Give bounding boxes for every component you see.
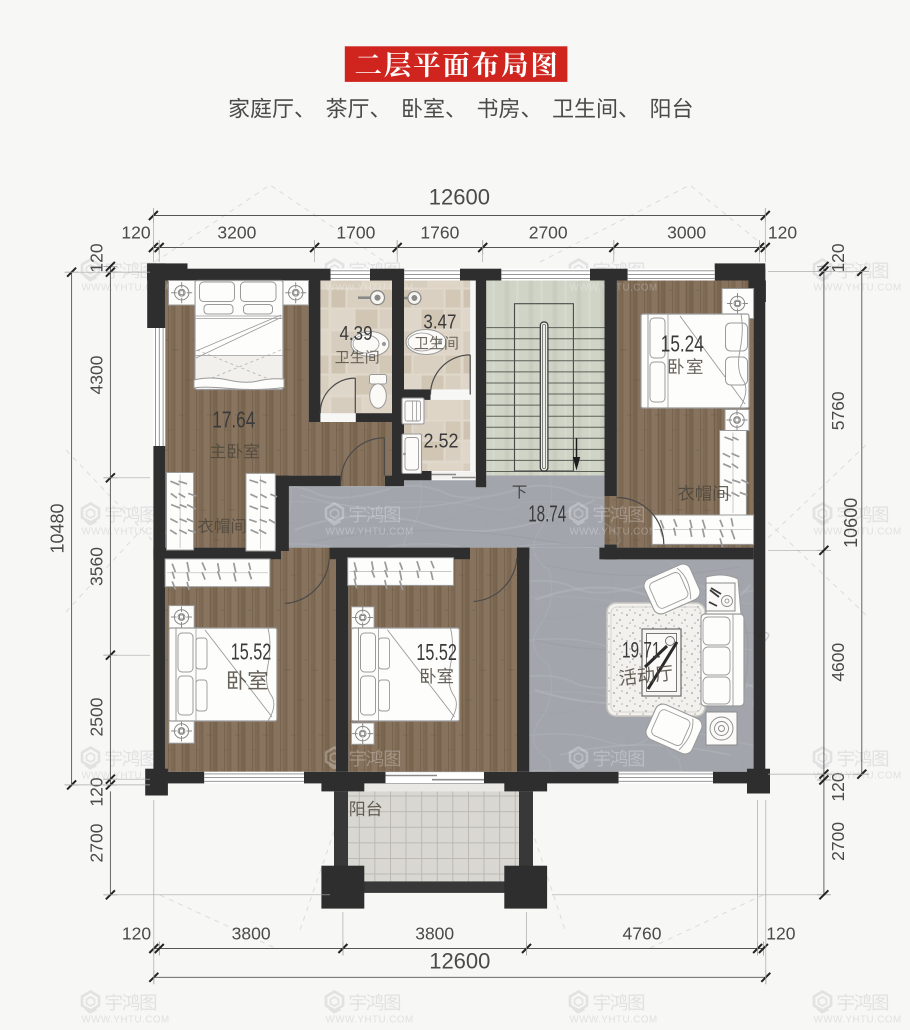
svg-text:WWW.YHTU.COM: WWW.YHTU.COM xyxy=(326,1015,414,1026)
svg-text:WWW.YHTU.COM: WWW.YHTU.COM xyxy=(570,527,658,538)
svg-text:2700: 2700 xyxy=(529,222,568,242)
svg-text:2700: 2700 xyxy=(87,823,107,862)
svg-text:120: 120 xyxy=(828,772,848,801)
svg-text:3800: 3800 xyxy=(232,924,271,944)
svg-text:120: 120 xyxy=(86,243,106,272)
svg-text:120: 120 xyxy=(766,924,795,944)
svg-text:4600: 4600 xyxy=(828,642,848,681)
svg-text:10480: 10480 xyxy=(48,503,68,553)
svg-text:120: 120 xyxy=(828,243,848,272)
svg-text:3800: 3800 xyxy=(415,924,454,944)
svg-text:3.47: 3.47 xyxy=(423,311,456,333)
svg-text:12600: 12600 xyxy=(429,949,490,974)
svg-text:4.39: 4.39 xyxy=(340,323,373,345)
svg-text:120: 120 xyxy=(121,222,150,242)
svg-text:3000: 3000 xyxy=(667,222,706,242)
svg-text:15.52: 15.52 xyxy=(231,638,272,664)
svg-text:WWW.YHTU.COM: WWW.YHTU.COM xyxy=(82,1015,170,1026)
svg-text:17.64: 17.64 xyxy=(212,406,255,432)
svg-text:1760: 1760 xyxy=(420,222,459,242)
svg-text:120: 120 xyxy=(87,777,107,806)
svg-text:WWW.YHTU.COM: WWW.YHTU.COM xyxy=(814,1015,902,1026)
svg-text:WWW.YHTU.COM: WWW.YHTU.COM xyxy=(570,1015,658,1026)
svg-text:1700: 1700 xyxy=(336,222,375,242)
svg-text:10600: 10600 xyxy=(841,498,861,548)
svg-text:120: 120 xyxy=(768,222,797,242)
svg-text:WWW.YHTU.COM: WWW.YHTU.COM xyxy=(814,283,902,294)
svg-text:2700: 2700 xyxy=(828,822,848,861)
svg-text:2.52: 2.52 xyxy=(424,431,459,453)
svg-text:4760: 4760 xyxy=(623,924,662,944)
svg-text:19.71: 19.71 xyxy=(622,637,661,662)
svg-text:WWW.YHTU.COM: WWW.YHTU.COM xyxy=(326,527,414,538)
svg-text:12600: 12600 xyxy=(429,185,490,210)
svg-text:2500: 2500 xyxy=(87,697,107,736)
svg-text:4300: 4300 xyxy=(86,355,106,394)
svg-text:15.24: 15.24 xyxy=(661,330,704,356)
svg-text:18.74: 18.74 xyxy=(528,501,566,527)
svg-text:3560: 3560 xyxy=(87,547,107,586)
svg-text:15.52: 15.52 xyxy=(416,639,457,665)
svg-text:120: 120 xyxy=(122,924,151,944)
svg-text:3200: 3200 xyxy=(217,222,256,242)
svg-text:5760: 5760 xyxy=(828,391,848,430)
